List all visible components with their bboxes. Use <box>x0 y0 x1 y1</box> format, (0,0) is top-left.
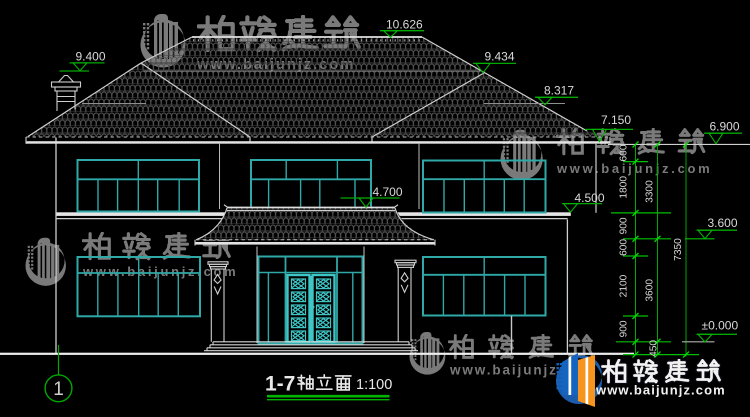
svg-text:www.baijunjz.com: www.baijunjz.com <box>595 383 726 398</box>
svg-text:3600: 3600 <box>645 279 656 302</box>
svg-text:600: 600 <box>619 239 630 256</box>
svg-text:900: 900 <box>619 217 630 234</box>
svg-text:1-7: 1-7 <box>265 373 295 396</box>
svg-text:600: 600 <box>619 144 630 161</box>
svg-text:3300: 3300 <box>645 180 656 203</box>
svg-text:9.400: 9.400 <box>76 49 106 63</box>
svg-text:3.600: 3.600 <box>708 216 738 230</box>
svg-text:4.500: 4.500 <box>575 191 605 205</box>
svg-text:2100: 2100 <box>619 274 630 297</box>
svg-text:450: 450 <box>649 340 660 357</box>
svg-text:4.700: 4.700 <box>373 185 403 199</box>
svg-text:7350: 7350 <box>673 238 684 261</box>
svg-text:900: 900 <box>619 320 630 337</box>
svg-text:9.434: 9.434 <box>485 50 515 64</box>
svg-text:7.150: 7.150 <box>601 113 631 127</box>
svg-text:±0.000: ±0.000 <box>702 319 739 333</box>
svg-text:1: 1 <box>53 379 64 400</box>
svg-text:1:100: 1:100 <box>356 377 392 393</box>
svg-text:6.900: 6.900 <box>710 120 740 134</box>
svg-text:8.317: 8.317 <box>544 84 574 98</box>
svg-text:1800: 1800 <box>619 176 630 199</box>
svg-text:10.626: 10.626 <box>386 18 423 32</box>
